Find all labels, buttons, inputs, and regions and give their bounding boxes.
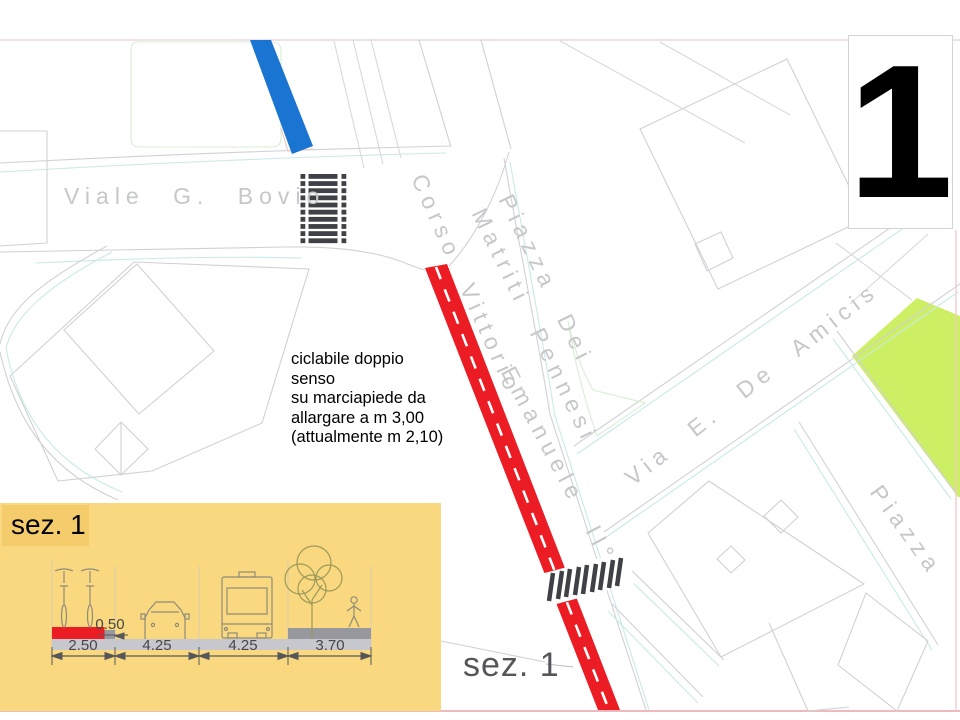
dimension-label-4: 3.70: [305, 637, 355, 654]
cycle-path-annotation: ciclabile doppio senso su marciapiede da…: [291, 350, 451, 448]
dimension-label-3: 4.25: [218, 637, 268, 654]
street-label-viale-bovio: Viale G. Bovio: [64, 183, 325, 210]
sheet-number-box: 1: [848, 35, 953, 229]
dimension-label-offset: 0.50: [85, 616, 135, 633]
plan-sheet: 1 Viale G. Bovio Corso Vittorio Emanuele…: [0, 0, 960, 720]
dimension-label-1: 2.50: [58, 637, 108, 654]
section-title-box: sez. 1: [2, 505, 89, 546]
bus-icon: [222, 572, 272, 638]
section-callout: sez. 1: [463, 646, 560, 685]
cross-section-drawing: [0, 0, 960, 720]
tree-icon: [285, 546, 342, 638]
dimension-label-2: 4.25: [132, 637, 182, 654]
sheet-number: 1: [848, 47, 954, 217]
pedestrian-icon: [347, 597, 361, 627]
car-icon: [141, 602, 189, 639]
section-title: sez. 1: [2, 505, 89, 545]
